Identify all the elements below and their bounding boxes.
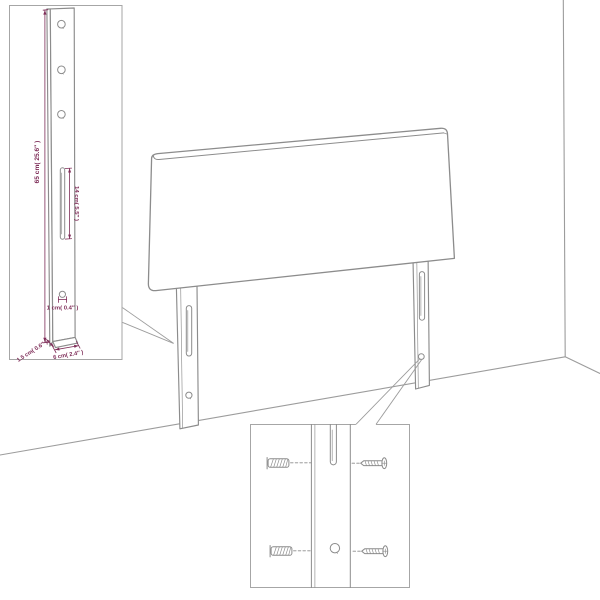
- right-detail-box: [251, 425, 410, 588]
- product-diagram: 65 cm( 25.6″ ) 14 cm( 5.5″ ) 1 cm( 0.4″ …: [0, 0, 600, 600]
- magnified-leg: [47, 8, 78, 348]
- height-dim-ext-top: [43, 10, 48, 11]
- floor-line-right: [565, 357, 600, 374]
- left-detail-box: 65 cm( 25.6″ ) 14 cm( 5.5″ ) 1 cm( 0.4″ …: [10, 6, 123, 364]
- height-dim-label: 65 cm( 25.6″ ): [34, 141, 41, 184]
- right-leg: [413, 258, 429, 389]
- slot-dim-ext-bottom: [65, 239, 72, 240]
- wall-corner-line: [563, 0, 565, 357]
- left-leg-body: [176, 286, 198, 429]
- right-callout-line-right: [376, 359, 422, 425]
- headboard: [148, 128, 454, 290]
- headboard-panel: [148, 128, 454, 290]
- diagram-canvas: 65 cm( 25.6″ ) 14 cm( 5.5″ ) 1 cm( 0.4″ …: [0, 0, 600, 600]
- slot-dim-label: 14 cm( 5.5″ ): [73, 186, 79, 221]
- left-callout-lines: [123, 308, 174, 344]
- hole-dim-label: 1 cm( 0.4″ ): [47, 306, 79, 312]
- left-leg: [176, 286, 198, 429]
